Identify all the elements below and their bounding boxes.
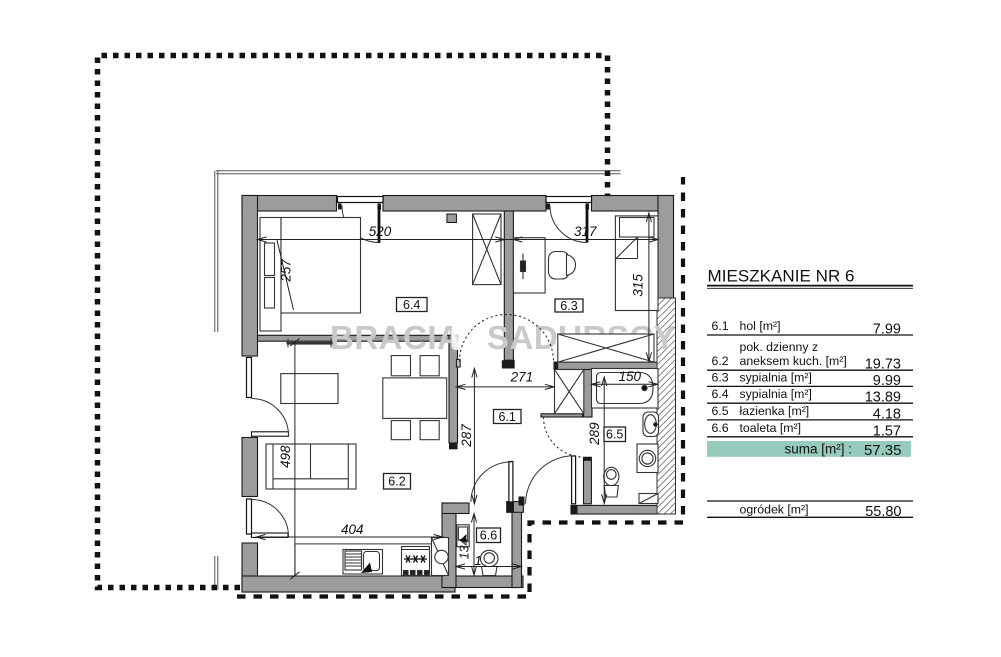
- svg-text:hol [m²]: hol [m²]: [740, 319, 781, 333]
- svg-text:6.4: 6.4: [712, 387, 729, 401]
- svg-text:287: 287: [459, 424, 474, 448]
- svg-text:pok. dzienny z: pok. dzienny z: [740, 340, 819, 354]
- svg-text:6.4: 6.4: [403, 298, 420, 312]
- svg-text:BRACIA: BRACIA: [330, 319, 461, 356]
- svg-text:520: 520: [369, 224, 392, 239]
- svg-text:sypialnia [m²]: sypialnia [m²]: [740, 370, 812, 384]
- svg-text:315: 315: [631, 274, 646, 297]
- svg-text:ogródek [m²]: ogródek [m²]: [740, 503, 809, 517]
- svg-text:sypialnia [m²]: sypialnia [m²]: [740, 387, 812, 401]
- svg-text:MIESZKANIE NR 6: MIESZKANIE NR 6: [708, 267, 855, 286]
- svg-text:257: 257: [278, 259, 293, 283]
- svg-text:317: 317: [574, 224, 597, 239]
- svg-text:6.3: 6.3: [560, 299, 577, 313]
- svg-text:6.1: 6.1: [499, 410, 516, 424]
- svg-text:404: 404: [341, 522, 364, 537]
- svg-text:toaleta [m²]: toaleta [m²]: [740, 421, 802, 435]
- svg-text:6.2: 6.2: [388, 475, 405, 489]
- svg-text:aneksem kuch. [m²]: aneksem kuch. [m²]: [740, 354, 847, 368]
- svg-text:150: 150: [619, 369, 642, 384]
- svg-text:57.35: 57.35: [864, 442, 902, 459]
- svg-text:271: 271: [510, 370, 534, 385]
- svg-text:1: 1: [475, 553, 482, 568]
- svg-text:suma [m²] :: suma [m²] :: [784, 441, 852, 456]
- svg-text:łazienka [m²]: łazienka [m²]: [740, 404, 810, 418]
- svg-text:134: 134: [458, 539, 472, 560]
- svg-text:6.1: 6.1: [712, 319, 729, 333]
- svg-text:6.2: 6.2: [712, 354, 729, 368]
- svg-text:6.6: 6.6: [480, 529, 497, 543]
- svg-text:6.5: 6.5: [712, 404, 729, 418]
- svg-text:6.5: 6.5: [606, 428, 623, 442]
- svg-text:6.6: 6.6: [712, 421, 729, 435]
- svg-text:289: 289: [587, 422, 602, 446]
- svg-text:498: 498: [278, 445, 293, 468]
- svg-text:6.3: 6.3: [712, 370, 729, 384]
